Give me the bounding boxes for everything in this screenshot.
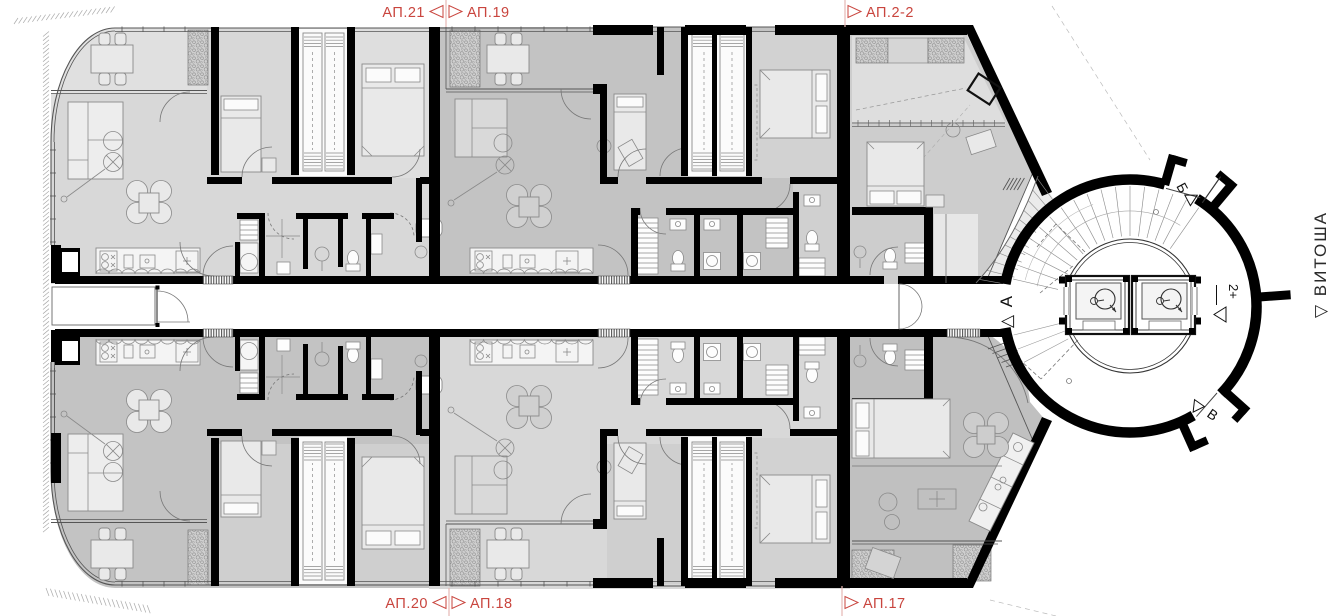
svg-text:△ А: △ А [997, 294, 1016, 328]
svg-text:АП.20: АП.20 [385, 596, 428, 612]
svg-text:АП.21: АП.21 [382, 5, 425, 21]
svg-text:АП.2-2: АП.2-2 [866, 5, 914, 21]
svg-text:АП.19: АП.19 [467, 5, 510, 21]
svg-text:АП.18: АП.18 [470, 596, 513, 612]
svg-text:АП.17: АП.17 [863, 596, 906, 612]
svg-text:▽ ВИТОША: ▽ ВИТОША [1311, 211, 1330, 318]
svg-text:2+: 2+ [1226, 284, 1241, 299]
